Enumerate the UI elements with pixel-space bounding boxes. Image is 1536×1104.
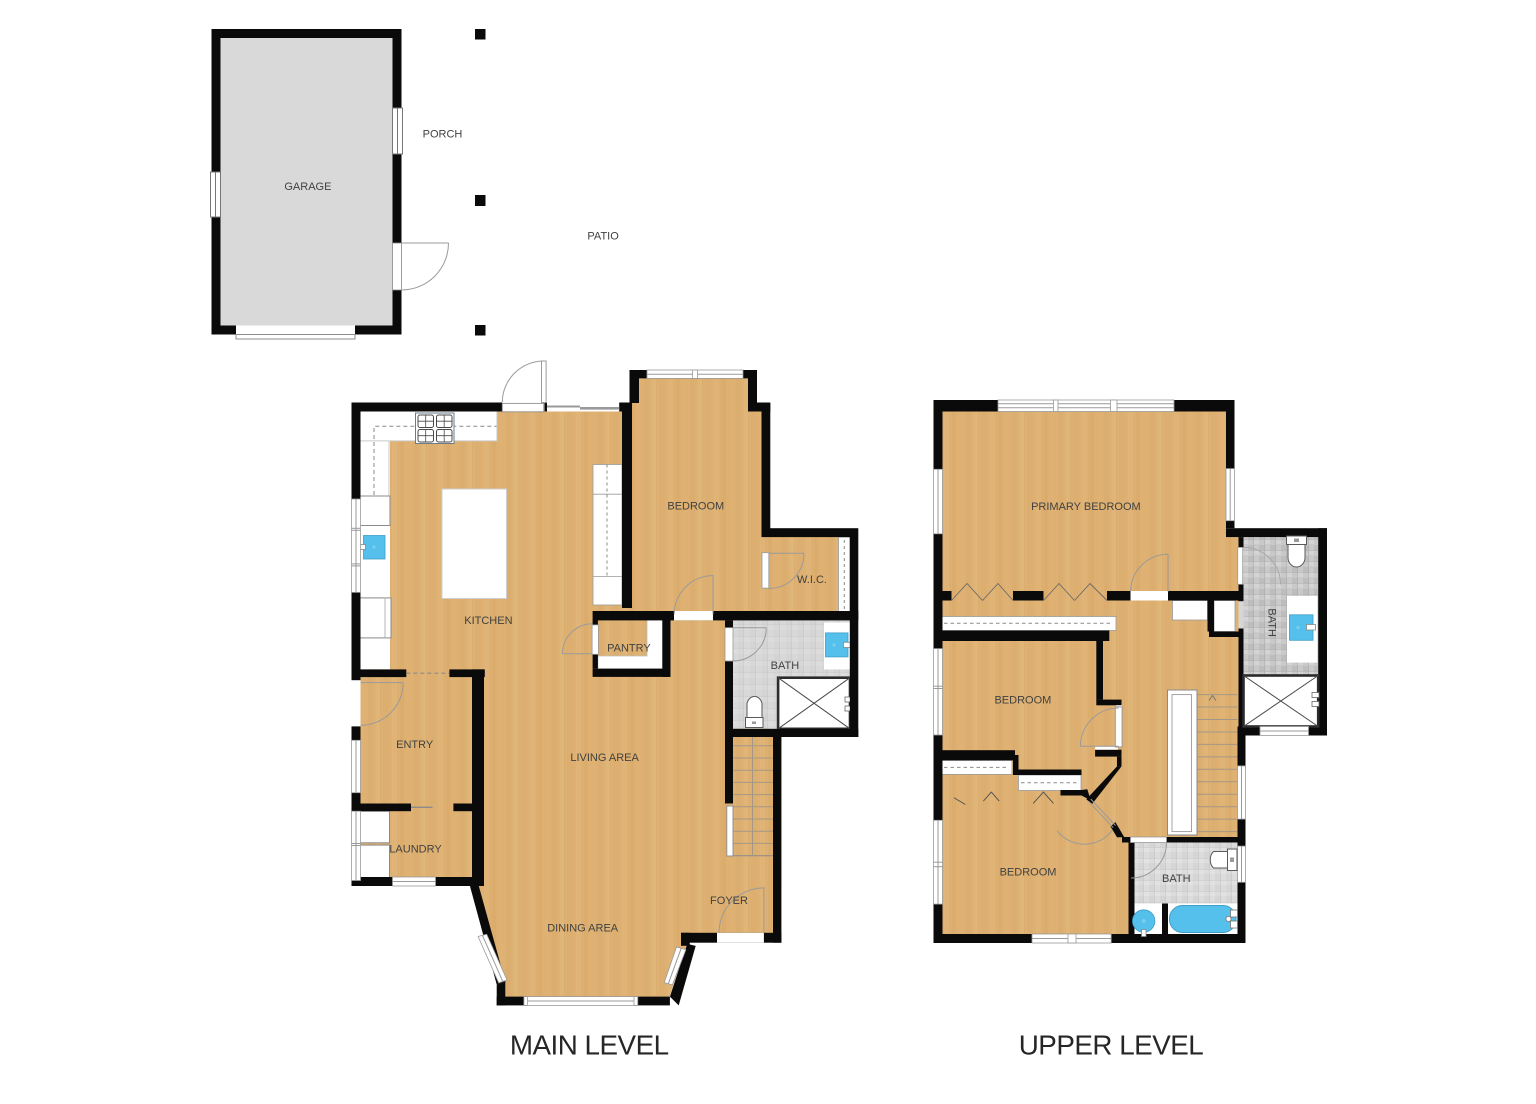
svg-text:PATIO: PATIO: [587, 230, 619, 242]
svg-text:BEDROOM: BEDROOM: [667, 501, 724, 513]
svg-text:FOYER: FOYER: [710, 895, 748, 907]
svg-text:BATH: BATH: [1265, 608, 1277, 637]
svg-text:BEDROOM: BEDROOM: [1000, 867, 1057, 879]
svg-text:DINING AREA: DINING AREA: [547, 922, 619, 934]
svg-text:PRIMARY BEDROOM: PRIMARY BEDROOM: [1031, 501, 1141, 513]
svg-text:ENTRY: ENTRY: [396, 739, 434, 751]
svg-text:GARAGE: GARAGE: [284, 181, 331, 193]
svg-text:BEDROOM: BEDROOM: [994, 695, 1051, 707]
svg-text:PORCH: PORCH: [423, 129, 463, 141]
svg-text:BATH: BATH: [771, 660, 800, 672]
svg-text:PANTRY: PANTRY: [607, 642, 651, 654]
svg-text:LAUNDRY: LAUNDRY: [389, 843, 442, 855]
svg-text:BATH: BATH: [1162, 873, 1191, 885]
svg-text:MAIN LEVEL: MAIN LEVEL: [510, 1030, 669, 1061]
svg-text:KITCHEN: KITCHEN: [464, 615, 512, 627]
svg-text:W.I.C.: W.I.C.: [797, 574, 827, 586]
svg-text:UPPER LEVEL: UPPER LEVEL: [1019, 1030, 1204, 1061]
svg-text:LIVING AREA: LIVING AREA: [570, 752, 639, 764]
